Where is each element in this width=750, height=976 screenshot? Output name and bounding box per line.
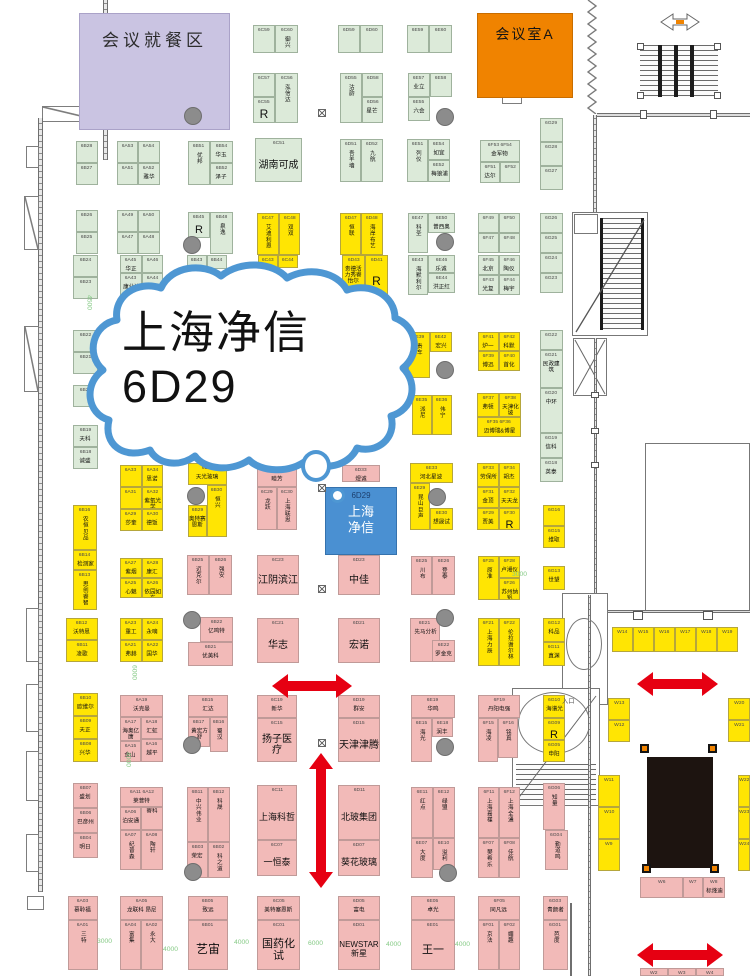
booth-6D56[interactable]: 6D56星芒: [362, 97, 383, 123]
booth-number: 6F51: [484, 164, 495, 169]
booth-6B02[interactable]: 6B02科之道: [208, 842, 230, 878]
booth-number: 6B16: [79, 507, 91, 512]
booth-name: 登泰: [440, 567, 446, 579]
booth-6A01[interactable]: 6A01三特: [68, 920, 98, 970]
booth-6G24[interactable]: 6G24: [540, 253, 563, 273]
booth-6A32[interactable]: 6A32紫氧光学: [142, 487, 163, 509]
booth-6G26[interactable]: 6G26: [540, 213, 563, 233]
booth-6E55[interactable]: 6E55六会: [408, 97, 430, 121]
booth-number: 6C59: [258, 27, 270, 32]
booth-6A23[interactable]: 6A23重工: [120, 618, 142, 640]
booth-number: 6A25: [125, 580, 137, 585]
booth-W22[interactable]: W22: [738, 775, 750, 807]
booth-6B26[interactable]: 6B26强安: [209, 555, 232, 595]
booth-6E11[interactable]: 6E11红点: [411, 787, 433, 838]
booth-6A21[interactable]: 6A21弗赫: [120, 640, 142, 662]
booth-6C11[interactable]: 6C11上海科哲: [257, 785, 297, 840]
booth-6F40[interactable]: 6F40首化: [499, 351, 520, 371]
booth-number: 6A07: [125, 832, 137, 837]
booth-6A17[interactable]: 6A17海奥亿唐: [120, 717, 141, 741]
booth-6F47[interactable]: 6F47: [478, 233, 499, 253]
booth-6B22[interactable]: 6B22亿鸣特: [200, 617, 233, 642]
booth-6A54[interactable]: 6A54: [138, 141, 160, 163]
booth-6G11[interactable]: 6G11直渊: [543, 642, 565, 666]
booth-number: 6D58: [367, 75, 379, 80]
booth-6D15[interactable]: 6D15天津津腾: [338, 718, 380, 762]
booth-name: 贾美: [482, 519, 493, 525]
booth-6A07[interactable]: 6A07纪普森: [120, 830, 141, 870]
booth-6E36[interactable]: 6E36伟宁: [432, 395, 452, 435]
booth-W14[interactable]: W14: [612, 627, 633, 652]
booth-name: 民政建筑: [541, 361, 562, 373]
booth-6F21[interactable]: 6F21上海力辰: [478, 618, 499, 666]
booth-name: 天津津腾: [339, 740, 379, 751]
booth-number: 6A01: [77, 922, 89, 927]
booth-6G18[interactable]: 6G18英泰: [540, 458, 563, 482]
booth-6F37[interactable]: 6F37弗顿: [477, 393, 499, 417]
booth-W4[interactable]: W4: [696, 968, 724, 976]
booth-6B52[interactable]: 6B52泽子: [210, 163, 233, 185]
booth-6F08[interactable]: 6F08佳航: [499, 838, 520, 878]
booth-name: 知量: [551, 794, 557, 806]
booth-6D51[interactable]: 6D51吾羊墙: [340, 139, 361, 182]
booth-W12[interactable]: W12: [608, 720, 630, 742]
booth-6C60[interactable]: 6C60御兴: [275, 25, 298, 53]
booth-6E22[interactable]: 6E22罗金克: [432, 640, 455, 662]
booth-number: 6G27: [545, 168, 557, 173]
booth-6C05[interactable]: 6C05美特塞恩斯: [257, 896, 300, 920]
booth-name: 金军物: [492, 151, 509, 157]
booth-W15[interactable]: W15: [633, 627, 654, 652]
booth-6C59[interactable]: 6C59: [253, 25, 275, 53]
booth-睿科[interactable]: 睿科: [141, 807, 163, 830]
booth-6G23[interactable]: 6G23: [540, 273, 563, 293]
booth-name: 同凡远: [491, 907, 508, 913]
booth-6E59[interactable]: 6E59: [407, 25, 429, 53]
booth-6E33[interactable]: 6E33河北星波: [410, 463, 453, 483]
booth-number: 6C15: [271, 720, 283, 725]
booth-name: 润丰: [437, 729, 448, 735]
aisle-arrow-icon: [637, 941, 723, 969]
booth-6B06[interactable]: 6B06巴彦州: [73, 808, 98, 833]
booth-number: 6F21: [483, 620, 494, 625]
booth-6F43[interactable]: 6F43光复: [478, 275, 499, 295]
booth-6F35 6F36[interactable]: 6F35 6F36迈博瑞&博星: [477, 417, 521, 437]
booth-W24[interactable]: W24: [738, 839, 750, 871]
booth-6A05[interactable]: 6A05龙联科 昂尼: [120, 896, 163, 920]
booth-6A16[interactable]: 6A16越平: [141, 739, 163, 762]
booth-number: 6E43: [412, 257, 424, 262]
booth-6B12[interactable]: 6B12沃特思: [66, 618, 98, 640]
booth-W11[interactable]: W11: [598, 775, 620, 807]
booth-6A25[interactable]: 6A25心魅: [120, 578, 142, 598]
booth-number: 6A28: [147, 560, 159, 565]
booth-name: 思诺: [147, 476, 158, 482]
booth-6D52[interactable]: 6D52九航: [361, 139, 383, 182]
booth-6B11[interactable]: 6B11中兴伟业: [187, 787, 208, 842]
booth-W10[interactable]: W10: [598, 807, 620, 839]
booth-number: 6G29: [545, 120, 557, 125]
booth-6B25[interactable]: 6B25: [76, 232, 98, 254]
booth-6G03[interactable]: 6G03青颜者: [543, 896, 568, 920]
booth-number: 6B26: [215, 557, 227, 562]
booth-6C47[interactable]: 6C47艾迪利恩: [257, 213, 279, 255]
booth-6F16[interactable]: 6F16铭真: [498, 718, 518, 758]
booth-6A27[interactable]: 6A27紫烟: [120, 558, 142, 578]
booth-W20[interactable]: W20: [728, 698, 750, 720]
booth-name: 恒兴: [214, 496, 220, 508]
booth-number: 6C57: [258, 75, 270, 80]
booth-6C51[interactable]: 6C51湖南可成: [255, 138, 302, 182]
booth-6E50[interactable]: 6E50普西奥: [428, 213, 455, 233]
booth-number: 6B05: [202, 898, 214, 903]
booth-number: 6D60: [366, 27, 378, 32]
booth-6F45[interactable]: 6F45北京: [478, 255, 499, 275]
booth-6G27[interactable]: 6G27: [540, 166, 563, 190]
booth-6A02[interactable]: 6A02永大: [141, 920, 163, 970]
booth-number: 6F44: [504, 277, 515, 282]
booth-6B21[interactable]: 6B21优美科: [188, 642, 233, 666]
booth-number: W13: [614, 700, 624, 705]
booth-W21[interactable]: W21: [728, 720, 750, 742]
booth-6A08[interactable]: 6A08陶轩: [141, 830, 163, 870]
booth-W6[interactable]: W6: [640, 877, 683, 898]
booth-6E25[interactable]: 6E25川布: [411, 556, 432, 595]
booth-6F53 6F54[interactable]: 6F53 6F54金军物: [480, 140, 520, 162]
booth-6F11[interactable]: 6F11上海嘉槿: [478, 787, 499, 838]
booth-name: 普西奥: [433, 224, 450, 230]
booth-6F15[interactable]: 6F15海凌: [478, 718, 498, 762]
booth-6E57[interactable]: 6E57业立: [408, 73, 430, 97]
booth-name: 艺宙: [189, 943, 227, 956]
booth-name: 荣宏: [192, 853, 203, 859]
booth-6G15[interactable]: 6G15维取: [543, 526, 565, 548]
booth-W17[interactable]: W17: [675, 627, 696, 652]
booth-6F30[interactable]: 6F30R: [499, 508, 520, 530]
booth-6B25[interactable]: 6B25迈克尔: [187, 555, 209, 595]
booth-number: 6F39: [483, 353, 494, 358]
booth-number: 6B25: [192, 557, 204, 562]
booth-6A53[interactable]: 6A53: [117, 141, 138, 163]
booth-6G05[interactable]: 6G05申阳: [543, 740, 565, 762]
booth-6C29[interactable]: 6C29龙跃: [257, 487, 277, 530]
booth-6D11[interactable]: 6D11北玻集团: [338, 785, 380, 840]
booth-6F02[interactable]: 6F02媚趣: [499, 920, 520, 970]
booth-W19[interactable]: W19: [717, 627, 738, 652]
booth-6G22[interactable]: 6G22: [540, 330, 563, 350]
booth-6A29[interactable]: 6A29莎奎: [120, 509, 142, 531]
booth-6A30[interactable]: 6A30德饭: [142, 509, 163, 531]
booth-6G21[interactable]: 6G21民政建筑: [540, 350, 563, 388]
booth-name: 汇达: [202, 706, 213, 712]
booth-name: 泓信达: [283, 84, 289, 103]
booth-6E15[interactable]: 6E15海光: [411, 718, 432, 762]
booth-6E54[interactable]: 6E54如宜: [428, 139, 450, 160]
booth-6F49[interactable]: 6F49: [478, 213, 499, 233]
booth-6B16[interactable]: 6B16蜀汉: [210, 717, 228, 752]
booth-6E26[interactable]: 6E26登泰: [432, 556, 455, 595]
booth-6E47[interactable]: 6E47科圣: [408, 213, 428, 253]
booth-6G13[interactable]: 6G13世望: [543, 566, 565, 590]
booth-6A11 6A12[interactable]: 6A11 6A12莱普特: [120, 787, 163, 807]
booth-6B28[interactable]: 6B28: [76, 141, 98, 163]
booth-6F34[interactable]: 6F34胡杰: [499, 463, 520, 487]
booth-6F31[interactable]: 6F31金顶: [477, 487, 499, 508]
booth-number: 6B12: [213, 789, 225, 794]
booth-name: 胡杰: [504, 474, 515, 480]
booth-6G19[interactable]: 6G19信科: [540, 433, 563, 458]
booth-6B48[interactable]: 6B48泉逸: [210, 212, 233, 254]
booth-6F32[interactable]: 6F32天天龙: [499, 487, 520, 508]
booth-W8[interactable]: W8标烽迪: [703, 877, 725, 898]
booth-6G25[interactable]: 6G25: [540, 233, 563, 253]
booth-6F52[interactable]: 6F52: [500, 162, 520, 183]
booth-6E30[interactable]: 6E30想晟试: [430, 508, 453, 530]
booth-6C48[interactable]: 6C48双双: [279, 213, 300, 255]
booth-6C23[interactable]: 6C23江阴滨江: [257, 555, 299, 595]
booth-6C30[interactable]: 6C30上海联思: [277, 487, 297, 530]
booth-6F41[interactable]: 6F41炉一: [478, 332, 499, 351]
booth-6F29[interactable]: 6F29贾美: [477, 508, 499, 530]
booth-6E42[interactable]: 6E42宏兴: [430, 332, 452, 352]
booth-number: 6F41: [483, 334, 494, 339]
booth-6B04[interactable]: 6B04明日: [73, 833, 98, 858]
booth-6E51[interactable]: 6E51列仪: [407, 139, 428, 182]
booth-6F38[interactable]: 6F38天津化玻: [499, 393, 521, 417]
stage-anchor: [640, 744, 649, 753]
booth-number: 6A51: [122, 165, 134, 170]
booth-6D23[interactable]: 6D23中佳: [338, 555, 380, 595]
booth-number: 6F35 6F36: [487, 419, 511, 424]
booth-6D48[interactable]: 6D48海岸布艺: [361, 213, 383, 255]
booth-6D55[interactable]: 6D55沽韵: [340, 73, 362, 123]
booth-6E07[interactable]: 6E07大度: [411, 838, 433, 878]
booth-number: 6A22: [147, 642, 159, 647]
booth-6G29[interactable]: 6G29: [540, 118, 563, 142]
booth-W13[interactable]: W13: [608, 698, 630, 720]
booth-6B05[interactable]: 6B05致远: [188, 896, 228, 920]
booth-6G28[interactable]: 6G28: [540, 142, 563, 166]
booth-6B14[interactable]: 6B14检测家: [73, 550, 97, 570]
booth-6A04[interactable]: 6A04富集: [120, 920, 141, 970]
booth-6C07[interactable]: 6C07一恒泰: [257, 840, 297, 876]
booth-6F48[interactable]: 6F48: [499, 233, 520, 253]
booth-6A19[interactable]: 6A19沃克曼: [120, 695, 163, 717]
booth-W9[interactable]: W9: [598, 839, 620, 871]
booth-6D59[interactable]: 6D59: [338, 25, 360, 53]
booth-number: W14: [617, 629, 627, 634]
booth-6A22[interactable]: 6A22国华: [142, 640, 163, 662]
booth-6F12[interactable]: 6F12上海全通: [499, 787, 520, 838]
booth-6E52[interactable]: 6E52梅狼浦: [428, 160, 450, 182]
booth-name: 欧维尔: [77, 704, 94, 710]
booth-6F05[interactable]: 6F05同凡远: [478, 896, 520, 920]
booth-6G06[interactable]: 6G06知量: [543, 783, 565, 830]
booth-W2[interactable]: W2: [640, 968, 668, 976]
booth-name: 天正: [80, 727, 91, 733]
booth-W23[interactable]: W23: [738, 807, 750, 839]
booth-6A31[interactable]: 6A31: [120, 487, 142, 509]
booth-6A48[interactable]: 6A48: [138, 232, 160, 254]
dimension-label: 4000: [163, 945, 178, 953]
booth-name: 樊希乐: [485, 849, 491, 868]
booth-6E01[interactable]: 6E01王一: [411, 920, 455, 970]
booth-6B29[interactable]: 6B29奥特赛恩斯: [188, 505, 207, 537]
booth-6A50[interactable]: 6A50: [138, 210, 160, 232]
booth-name: 中佳: [339, 575, 379, 586]
booth-6B11[interactable]: 6B11凌歌: [66, 640, 98, 662]
booth-6A52[interactable]: 6A52雅华: [138, 163, 160, 185]
booth-6G12[interactable]: 6G12科品: [543, 618, 565, 642]
booth-number: 6F15: [482, 720, 493, 725]
booth-6F33[interactable]: 6F33劳保所: [477, 463, 499, 487]
booth-6B07[interactable]: 6B07盛划: [73, 783, 98, 808]
booth-6B51[interactable]: 6B51优邦: [188, 141, 210, 185]
booth-6B08[interactable]: 6B08兴华: [73, 739, 98, 762]
booth-6D60[interactable]: 6D60: [360, 25, 383, 53]
booth-6B13[interactable]: 6B13思创睿智: [73, 570, 97, 610]
booth-6E29[interactable]: 6E29昆山巨声: [410, 483, 430, 530]
booth-6G09[interactable]: 6G09R: [543, 718, 565, 740]
booth-6C55[interactable]: 6C55R: [253, 97, 275, 123]
booth-6F44[interactable]: 6F44梅宇: [499, 275, 520, 295]
booth-name: 标烽迪: [706, 888, 723, 894]
booth-6E58[interactable]: 6E58: [430, 73, 452, 97]
booth-6F01[interactable]: 6F01京法: [478, 920, 499, 970]
stair-cross: [573, 338, 607, 396]
booth-6D07[interactable]: 6D07葵花玻璃: [338, 840, 380, 876]
booth-W3[interactable]: W3: [668, 968, 696, 976]
wall-tick: [591, 392, 599, 398]
booth-6A49[interactable]: 6A49: [117, 210, 138, 232]
booth-number: 6G20: [545, 390, 557, 395]
booth-number: 6A02: [146, 922, 158, 927]
booth-W7[interactable]: W7: [683, 877, 703, 898]
booth-6F26[interactable]: 6F26苏州纳钒: [499, 578, 520, 600]
meeting-room-a[interactable]: 会议室A: [477, 13, 573, 98]
booth-name: 乐诚: [436, 266, 447, 272]
booth-number: 6G24: [545, 255, 557, 260]
booth-6F19[interactable]: 6F19丹阳电强: [478, 695, 520, 718]
booth-6A47[interactable]: 6A47: [117, 232, 138, 254]
booth-6B26[interactable]: 6B26: [76, 210, 98, 232]
booth-6E60[interactable]: 6E60: [429, 25, 452, 53]
booth-6E05[interactable]: 6E05卓光: [411, 896, 455, 920]
booth-name: 海默利尔: [415, 266, 421, 291]
booth-6B12[interactable]: 6B12科晟: [208, 787, 230, 842]
booth-number: 6B15: [202, 697, 214, 702]
pillar: [436, 738, 454, 756]
booth-number: 6A47: [122, 234, 134, 239]
booth-6A26[interactable]: 6A26依园如东: [142, 578, 163, 598]
dining-area-room[interactable]: 会议就餐区: [79, 13, 230, 130]
booth-name: 致远: [202, 907, 213, 913]
booth-6F46[interactable]: 6F46陶仪: [499, 255, 520, 275]
booth-number: 6G19: [545, 435, 557, 440]
booth-6C56[interactable]: 6C56泓信达: [275, 73, 298, 123]
booth-name: 科之道: [216, 853, 222, 872]
booth-6D47[interactable]: 6D47恒联: [340, 213, 361, 255]
aisle-arrow-icon: [637, 670, 718, 698]
booth-6F07[interactable]: 6F07樊希乐: [478, 838, 499, 878]
pillar: [436, 609, 454, 627]
booth-6A51[interactable]: 6A51: [117, 163, 138, 185]
booth-6E46[interactable]: 6E46乐诚: [428, 255, 455, 273]
booth-6A03[interactable]: 6A03慕聆福: [68, 896, 98, 920]
booth-number: 6C01: [273, 922, 285, 927]
booth-6B10[interactable]: 6B10欧维尔: [73, 693, 98, 716]
booth-6A28[interactable]: 6A28康汇: [142, 558, 163, 578]
booth-6B01[interactable]: 6B01艺宙: [188, 920, 228, 970]
booth-name: 依园如东: [143, 589, 163, 598]
booth-number: 6E36: [436, 397, 448, 402]
booth-6B45[interactable]: 6B45R: [188, 212, 210, 238]
booth-6D01[interactable]: 6D01NEWSTAR新星: [338, 920, 380, 970]
booth-6C44[interactable]: 6C44: [278, 255, 298, 268]
booth-6F50[interactable]: 6F50: [499, 213, 520, 233]
booth-number: 6D01: [353, 922, 365, 927]
door-post: [710, 110, 717, 119]
booth-number: 6D15: [353, 720, 365, 725]
booth-6D58[interactable]: 6D58: [362, 73, 383, 97]
booth-6B54[interactable]: 6B54华玉: [210, 141, 233, 163]
booth-6F22[interactable]: 6F22伦拉谢尔林: [499, 618, 520, 666]
booth-6A06[interactable]: 6A06泊安通: [120, 807, 141, 830]
booth-6G04[interactable]: 6G04勤道鸣: [545, 830, 568, 870]
booth-6C01[interactable]: 6C01国药化试: [257, 920, 300, 970]
booth-6E19[interactable]: 6E19华鸣: [411, 695, 455, 718]
booth-number: 6D48: [366, 215, 378, 220]
booth-6D05[interactable]: 6D05富电: [338, 896, 380, 920]
booth-6C15[interactable]: 6C15扬子医疗: [257, 718, 297, 762]
booth-name: 湖南可成: [256, 160, 301, 171]
booth-6F42[interactable]: 6F42科默: [499, 332, 520, 351]
booth-6F51[interactable]: 6F51达尔: [480, 162, 500, 183]
booth-6D21[interactable]: 6D21宏诺: [338, 618, 380, 663]
booth-6B16[interactable]: 6B16农恒贝品: [73, 505, 97, 550]
booth-6B30[interactable]: 6B30恒兴: [207, 485, 227, 537]
booth-number: 6B29: [192, 507, 204, 512]
booth-6G20[interactable]: 6G20中环: [540, 388, 563, 433]
booth-number: 6A24: [147, 620, 159, 625]
booth-6G16[interactable]: 6G16: [543, 505, 565, 526]
booth-name: 达尔: [484, 173, 495, 179]
booth-6B15[interactable]: 6B15汇达: [188, 695, 228, 717]
booth-6E44[interactable]: 6E44洪正红: [428, 273, 455, 293]
booth-name: 华志: [258, 640, 298, 651]
booth-W16[interactable]: W16: [654, 627, 675, 652]
booth-name: 科品: [548, 629, 559, 635]
booth-6A18[interactable]: 6A18汇虹: [141, 717, 163, 739]
booth-number: 6F48: [504, 235, 515, 240]
booth-6A24[interactable]: 6A24永嘀: [142, 618, 163, 640]
booth-6F25[interactable]: 6F25原准: [478, 556, 499, 600]
booth-W18[interactable]: W18: [696, 627, 717, 652]
booth-6G01[interactable]: 6G01芭度: [543, 920, 568, 970]
booth-6C21[interactable]: 6C21华志: [257, 618, 299, 663]
booth-6F39[interactable]: 6F39博迅: [478, 351, 499, 371]
booth-number: 6F50: [504, 215, 515, 220]
booth-number: W12: [614, 722, 624, 727]
booth-6E12[interactable]: 6E12绿盟: [433, 787, 455, 838]
booth-6B27[interactable]: 6B27: [76, 163, 98, 185]
booth-6E18[interactable]: 6E18润丰: [432, 718, 453, 737]
booth-6C57[interactable]: 6C57: [253, 73, 275, 97]
booth-6E35[interactable]: 6E35派尼: [412, 395, 432, 435]
booth-number: 6E57: [413, 75, 425, 80]
booth-number: 6B54: [216, 143, 228, 148]
booth-6B09[interactable]: 6B09天正: [73, 716, 98, 739]
